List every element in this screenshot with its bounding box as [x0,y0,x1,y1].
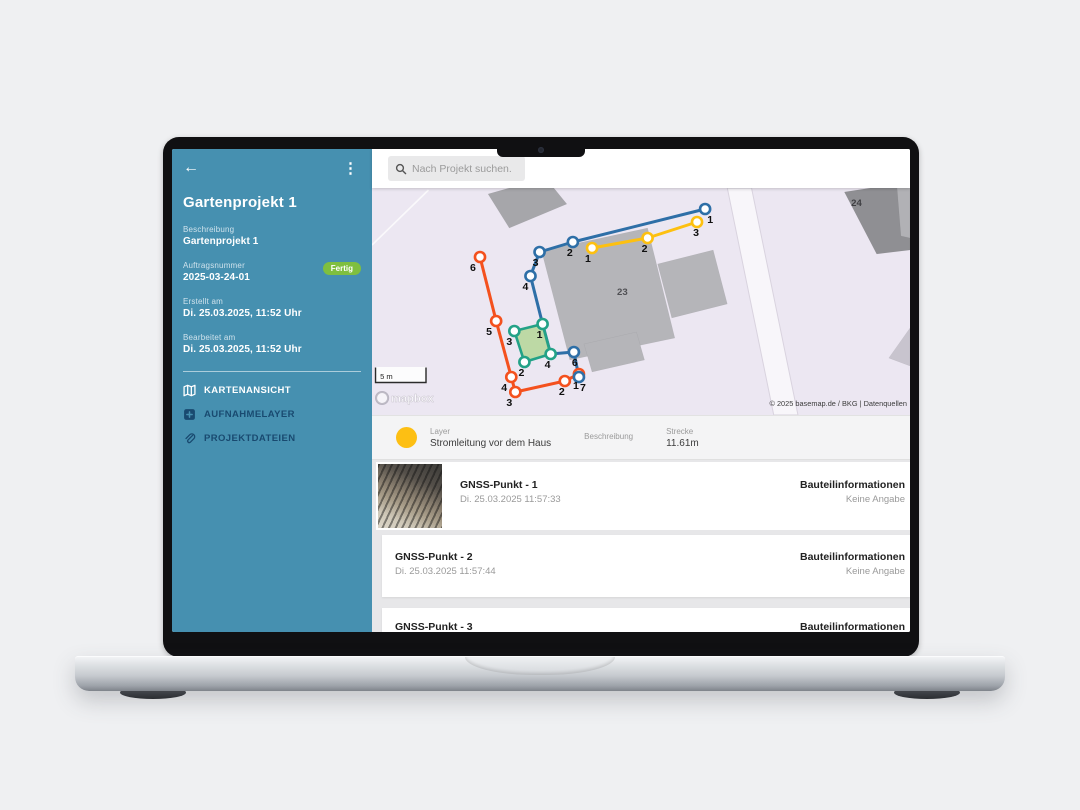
point-number-label: 3 [693,227,699,239]
scale-label: 5 m [380,372,393,381]
gnss-point-list: GNSS-Punkt - 1 Di. 25.03.2025 11:57:33 B… [372,460,910,632]
layer-info-row[interactable]: Layer Stromleitung vor dem Haus Beschrei… [372,415,910,460]
green-area-point [519,357,529,367]
point-number-label: 6 [470,262,476,274]
point-number-label: 6 [572,357,578,369]
orange-line-point [475,252,485,262]
blue-line-point [700,204,710,214]
yellow-line-point [587,243,597,253]
app-screen: ← ⋮ Gartenprojekt 1 Beschreibung Gartenp… [172,149,910,632]
status-badge: Fertig [323,262,361,275]
project-title: Gartenprojekt 1 [183,194,361,211]
point-timestamp: Di. 25.03.2025 11:57:33 [460,494,561,505]
building-label: 23 [617,287,628,298]
point-number-label: 3 [533,257,539,269]
point-number-label: 2 [559,386,565,398]
blue-line-point [525,271,535,281]
point-number-label: 2 [642,243,648,255]
point-number-label: 3 [506,336,512,348]
mapbox-logo-icon [376,392,388,404]
search-input[interactable] [412,163,518,175]
point-photo-thumbnail[interactable] [378,464,442,528]
description-column: Beschreibung [584,432,633,443]
map-icon [183,384,196,397]
map-canvas[interactable]: 232465432112346712331425 mmapbox© 2025 b… [372,188,910,415]
point-title: GNSS-Punkt - 3 [395,621,473,632]
yellow-line-point [643,233,653,243]
orange-line-point [491,316,501,326]
field-bearbeitet-am: Bearbeitet am Di. 25.03.2025, 11:52 Uhr [183,333,361,355]
point-number-label: 2 [518,367,524,379]
green-area-point [509,326,519,336]
back-arrow-icon[interactable]: ← [183,160,199,176]
laptop-bezel: ← ⋮ Gartenprojekt 1 Beschreibung Gartenp… [163,137,919,657]
list-item-gnss-1[interactable]: GNSS-Punkt - 1 Di. 25.03.2025 11:57:33 B… [376,462,910,530]
field-auftragsnummer: Auftragsnummer 2025-03-24-01 Fertig [183,261,361,283]
blue-line-point [535,247,545,257]
bauteil-info: Bauteilinformationen Keine Angabe [800,462,910,505]
point-number-label: 1 [585,253,591,265]
green-area-point [546,349,556,359]
search-field[interactable] [388,156,525,181]
point-title: GNSS-Punkt - 1 [460,479,561,491]
blue-line-point [568,237,578,247]
layer-color-swatch [396,427,417,448]
point-title: GNSS-Punkt - 2 [395,551,496,563]
page-background: ← ⋮ Gartenprojekt 1 Beschreibung Gartenp… [0,0,1080,810]
point-number-label: 5 [486,326,492,338]
sidebar-item-aufnahmelayer[interactable]: AUFNAHMELAYER [183,402,361,426]
laptop-notch [497,140,585,157]
map-view[interactable]: 232465432112346712331425 mmapbox© 2025 b… [372,188,910,415]
point-number-label: 4 [545,359,551,371]
search-header [372,149,910,188]
point-number-label: 1 [537,329,543,341]
sidebar-item-kartenansicht[interactable]: KARTENANSICHT [183,378,361,402]
building-label: 24 [851,198,862,209]
camera-icon [538,147,544,153]
laptop-base [75,656,1005,691]
main-panel: 232465432112346712331425 mmapbox© 2025 b… [372,149,910,632]
sidebar-divider [183,371,361,372]
sidebar-item-projektdateien[interactable]: PROJEKTDATEIEN [183,426,361,450]
field-erstellt-am: Erstellt am Di. 25.03.2025, 11:52 Uhr [183,297,361,319]
search-icon [395,163,407,175]
laptop-lid-scoop [465,657,615,675]
sidebar-topbar: ← ⋮ [183,149,361,181]
orange-line-point [506,372,516,382]
point-number-label: 3 [506,397,512,409]
orange-line-point [510,387,520,397]
bauteil-info: Bauteilinformationen Keine Angabe [800,535,910,577]
map-attribution: © 2025 basemap.de / BKG | Datenquellen [769,399,906,408]
paperclip-icon [183,432,196,445]
field-beschreibung: Beschreibung Gartenprojekt 1 [183,225,361,247]
point-timestamp: Di. 25.03.2025 11:57:44 [395,566,496,577]
point-number-label: 4 [501,382,507,394]
list-item-gnss-3[interactable]: GNSS-Punkt - 3 Bauteilinformationen [382,608,910,632]
layer-column: Layer Stromleitung vor dem Haus [430,427,551,449]
point-number-label: 7 [580,382,586,394]
point-number-label: 1 [573,380,579,392]
orange-line-point [560,376,570,386]
kebab-menu-icon[interactable]: ⋮ [340,161,361,176]
blue-line-point [569,347,579,357]
project-sidebar: ← ⋮ Gartenprojekt 1 Beschreibung Gartenp… [172,149,372,632]
green-area-point [538,319,548,329]
bauteil-info: Bauteilinformationen [800,608,910,632]
add-layer-icon [183,408,196,421]
mapbox-logo-text: mapbox [391,393,434,405]
list-item-gnss-2[interactable]: GNSS-Punkt - 2 Di. 25.03.2025 11:57:44 B… [382,535,910,597]
point-number-label: 1 [707,214,713,226]
yellow-line-point [692,217,702,227]
point-number-label: 4 [522,281,528,293]
point-number-label: 2 [567,247,573,259]
distance-column: Strecke 11.61m [666,427,699,449]
